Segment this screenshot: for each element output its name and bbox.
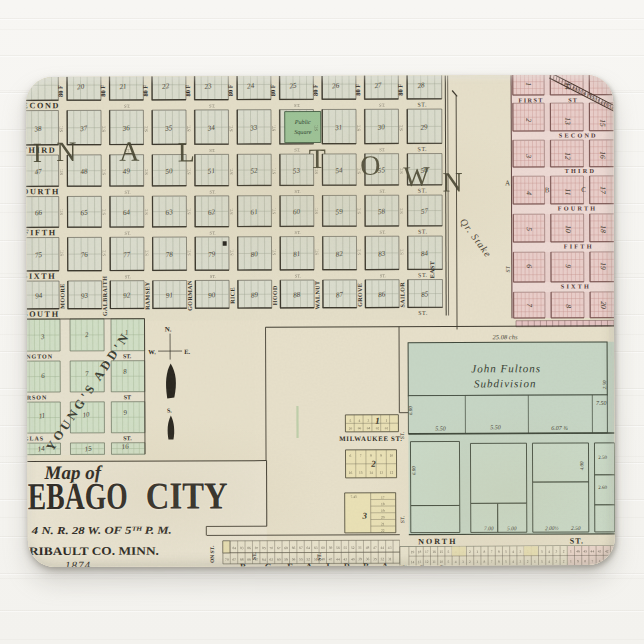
svg-text:5: 5 — [606, 559, 608, 563]
